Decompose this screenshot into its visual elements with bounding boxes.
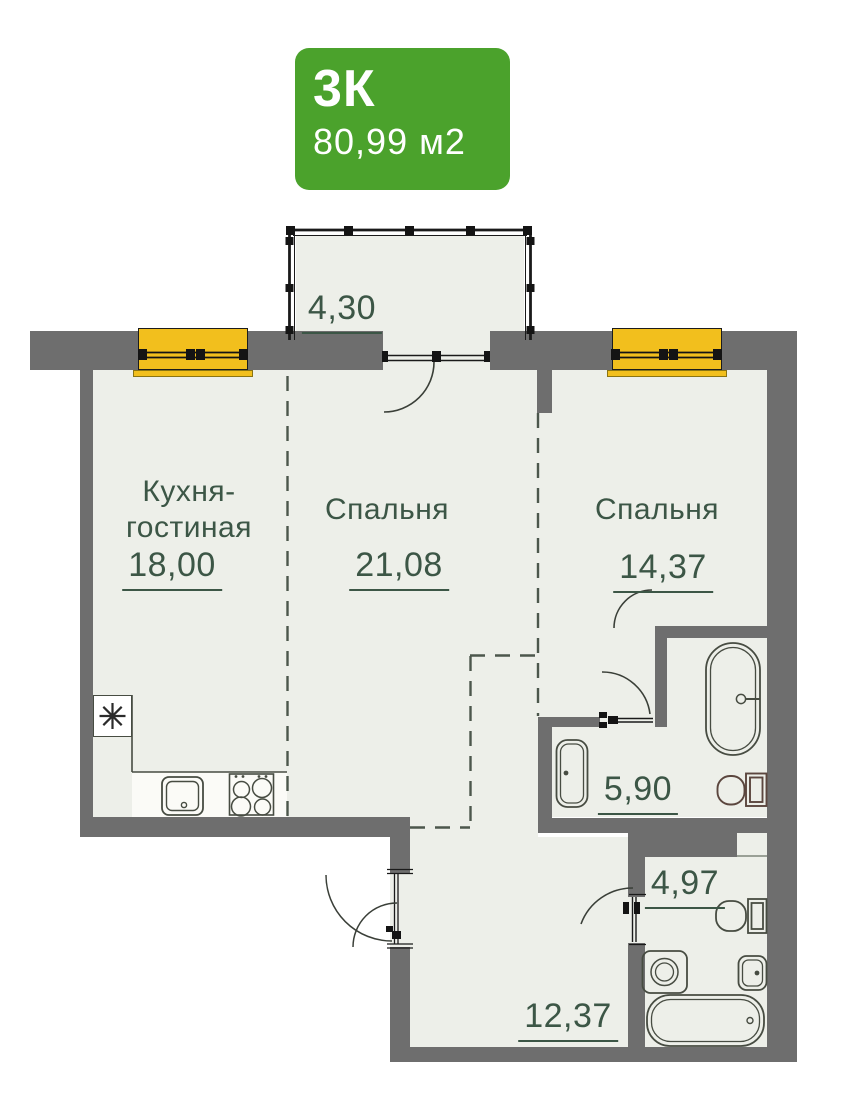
badge-area-label: 80,99 м2 xyxy=(313,120,510,164)
bathroom2-niche-floor xyxy=(737,833,767,857)
hallway-area-value: 12,37 xyxy=(518,997,618,1042)
bedroom1-name-value: Спальня xyxy=(325,493,449,526)
kitchen-living-area-value: 18,00 xyxy=(122,546,222,591)
wall-left xyxy=(80,370,93,817)
wall-entrance-upper xyxy=(390,837,410,873)
passage-floor xyxy=(410,817,538,837)
wall-bottom xyxy=(390,1047,797,1062)
window-bedroom2-sill xyxy=(607,370,727,377)
bedroom2-name-label: Спальня xyxy=(595,492,719,528)
window-bedroom2 xyxy=(612,328,722,370)
ventilation-shaft xyxy=(93,695,132,737)
wall-right xyxy=(767,331,797,1062)
window-kitchen-sill xyxy=(133,370,253,377)
wall-bathroom1-bottom xyxy=(538,818,767,833)
bathroom1-area-value: 5,90 xyxy=(598,770,678,815)
main-floor xyxy=(93,370,767,817)
bedroom1-area-label: 21,08 xyxy=(349,546,449,591)
wall-bathroom1-top xyxy=(655,626,767,638)
apartment-type-badge: 3К 80,99 м2 xyxy=(295,48,510,190)
bedroom2-name-value: Спальня xyxy=(595,493,719,526)
balcony-area-label: 4,30 xyxy=(302,289,382,334)
wall-bedroom-stub xyxy=(537,370,552,413)
window-kitchen xyxy=(138,328,248,370)
bedroom2-area-value: 14,37 xyxy=(613,548,713,593)
bedroom1-area-value: 21,08 xyxy=(349,546,449,591)
balcony-area-value: 4,30 xyxy=(302,289,382,334)
bathroom2-area-label: 4,97 xyxy=(645,864,725,909)
balcony-door-opening-floor xyxy=(383,331,490,370)
wall-bathroom2-top xyxy=(628,833,737,857)
kitchen-living-area-label: 18,00 xyxy=(122,546,222,591)
kitchen-living-name-line1: Кухня- xyxy=(142,475,235,508)
wall-entrance-lower xyxy=(390,947,410,1047)
bathroom2-area-value: 4,97 xyxy=(645,864,725,909)
floor-plan: 3К 80,99 м2 xyxy=(0,0,853,1100)
kitchen-counter xyxy=(132,772,287,817)
badge-rooms-label: 3К xyxy=(313,58,510,120)
entrance-opening-floor xyxy=(390,868,410,952)
hallway-area-label: 12,37 xyxy=(518,997,618,1042)
kitchen-living-name-label: Кухня- гостиная xyxy=(126,474,252,546)
wall-hall-right-lower xyxy=(628,943,645,1047)
wall-bathroom1-left xyxy=(538,727,552,818)
entrance-door-swing-arc-outer xyxy=(326,875,392,941)
bedroom2-area-label: 14,37 xyxy=(613,548,713,593)
wall-kitchen-bottom xyxy=(80,817,410,837)
kitchen-living-name-line2: гостиная xyxy=(126,511,252,544)
wall-bathroom1-door-wall xyxy=(538,717,600,727)
bathroom1-area-label: 5,90 xyxy=(598,770,678,815)
wall-bathroom1-left-upper xyxy=(655,638,667,727)
wall-hall-right-upper xyxy=(628,857,645,897)
bedroom1-name-label: Спальня xyxy=(325,492,449,528)
